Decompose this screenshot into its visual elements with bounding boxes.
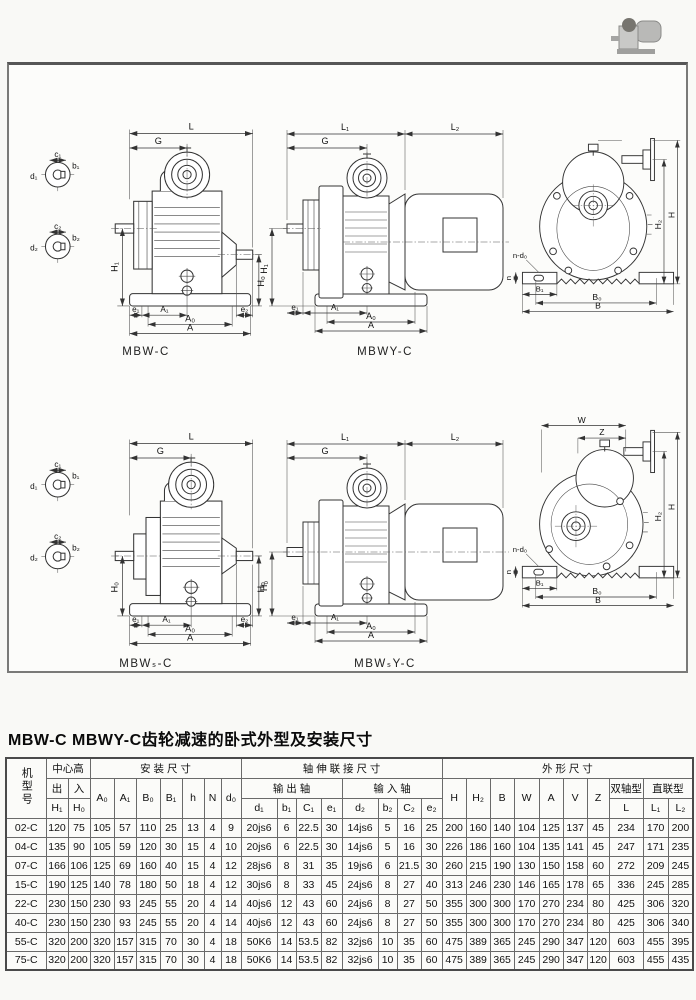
value-cell: 69: [114, 856, 136, 875]
value-cell: 20js6: [241, 818, 277, 837]
value-cell: 125: [90, 856, 114, 875]
value-cell: 35: [397, 932, 421, 951]
value-cell: 4: [204, 856, 221, 875]
header-center-height: 中心高: [46, 758, 90, 778]
dim-label-e1: e₁: [291, 303, 298, 312]
header-b1: b₁: [277, 798, 296, 818]
value-cell: 5: [378, 818, 397, 837]
header-B: B: [490, 778, 514, 818]
value-cell: 234: [563, 913, 587, 932]
header-e2: e₂: [421, 798, 442, 818]
value-cell: 12: [221, 856, 241, 875]
header-mounting: 安 装 尺 寸: [90, 758, 241, 778]
header-H: H: [442, 778, 466, 818]
dimension-table: 机型号 中心高 安 装 尺 寸 轴 伸 联 接 尺 寸 外 形 尺 寸 出 入 …: [5, 757, 694, 971]
value-cell: 209: [643, 856, 668, 875]
value-cell: 22.5: [296, 818, 321, 837]
value-cell: 50K6: [241, 932, 277, 951]
mbw-c-drawing: c₁ b₁ d₁ c₂ b₂ d₂: [27, 111, 265, 345]
value-cell: 300: [490, 894, 514, 913]
dim-label-e2: e₂: [241, 615, 249, 624]
value-cell: 30: [160, 837, 182, 856]
figure-rear-view-2: W Z H H₂ n-d₀ h B₁ B₀ B: [507, 417, 689, 620]
value-cell: 18: [221, 932, 241, 951]
value-cell: 4: [204, 837, 221, 856]
value-cell: 18: [182, 875, 204, 894]
value-cell: 395: [668, 932, 693, 951]
dim-label-B: B: [595, 595, 601, 605]
value-cell: 16: [397, 837, 421, 856]
value-cell: 60: [587, 856, 609, 875]
dim-label-b1: b₁: [72, 162, 80, 171]
photo-base: [617, 49, 655, 54]
value-cell: 245: [668, 856, 693, 875]
value-cell: 4: [204, 818, 221, 837]
value-cell: 14: [221, 913, 241, 932]
table-header: 机型号 中心高 安 装 尺 寸 轴 伸 联 接 尺 寸 外 形 尺 寸 出 入 …: [6, 758, 693, 818]
header-A0: A₀: [90, 778, 114, 818]
value-cell: 336: [609, 875, 643, 894]
dim-label-A1: A₁: [331, 613, 339, 622]
value-cell: 30: [182, 951, 204, 970]
reducer-body: [111, 456, 261, 616]
dim-label-e2: e₂: [241, 305, 249, 314]
value-cell: 300: [490, 913, 514, 932]
value-cell: 25: [160, 818, 182, 837]
dim-label-A: A: [187, 323, 194, 333]
value-cell: 315: [136, 932, 160, 951]
value-cell: 340: [668, 913, 693, 932]
value-cell: 14: [277, 932, 296, 951]
value-cell: 230: [90, 913, 114, 932]
value-cell: 30: [321, 837, 342, 856]
value-cell: 110: [136, 818, 160, 837]
header-outline: 外 形 尺 寸: [442, 758, 693, 778]
photo-motor-body: [636, 21, 661, 42]
value-cell: 475: [442, 951, 466, 970]
table-row: 02-C120751055711025134920js6622.53014js6…: [6, 818, 693, 837]
model-cell: 40-C: [6, 913, 46, 932]
value-cell: 8: [277, 856, 296, 875]
value-cell: 166: [46, 856, 68, 875]
value-cell: 158: [563, 856, 587, 875]
value-cell: 14: [221, 894, 241, 913]
table-row: 07-C16610612569160401541228js68313519js6…: [6, 856, 693, 875]
value-cell: 160: [466, 818, 490, 837]
dim-label-A1: A₁: [331, 303, 339, 312]
value-cell: 200: [68, 932, 90, 951]
value-cell: 57: [114, 818, 136, 837]
value-cell: 60: [421, 932, 442, 951]
value-cell: 125: [539, 818, 563, 837]
header-d1: d₁: [241, 798, 277, 818]
value-cell: 5: [378, 837, 397, 856]
value-cell: 43: [296, 894, 321, 913]
value-cell: 178: [563, 875, 587, 894]
dim-label-c1: c₁: [54, 150, 61, 159]
value-cell: 15: [182, 837, 204, 856]
value-cell: 135: [46, 837, 68, 856]
value-cell: 135: [539, 837, 563, 856]
value-cell: 315: [136, 951, 160, 970]
dim-label-W: W: [578, 417, 587, 425]
value-cell: 70: [160, 932, 182, 951]
value-cell: 320: [90, 932, 114, 951]
reducer-motor-body: [283, 152, 509, 306]
value-cell: 140: [90, 875, 114, 894]
header-H0: H₀: [68, 798, 90, 818]
value-cell: 245: [514, 951, 539, 970]
rear-view-1-drawing: H H₂ n-d₀ h B₁ B₀ B: [507, 127, 689, 324]
model-cell: 02-C: [6, 818, 46, 837]
value-cell: 60: [421, 951, 442, 970]
value-cell: 200: [442, 818, 466, 837]
value-cell: 4: [204, 875, 221, 894]
model-cell: 22-C: [6, 894, 46, 913]
value-cell: 245: [136, 913, 160, 932]
value-cell: 55: [160, 894, 182, 913]
value-cell: 130: [514, 856, 539, 875]
value-cell: 125: [68, 875, 90, 894]
dim-label-d2: d₂: [30, 554, 38, 563]
value-cell: 65: [587, 875, 609, 894]
value-cell: 270: [539, 913, 563, 932]
value-cell: 425: [609, 894, 643, 913]
value-cell: 603: [609, 951, 643, 970]
value-cell: 245: [514, 932, 539, 951]
value-cell: 12: [221, 875, 241, 894]
header-A1: A₁: [114, 778, 136, 818]
value-cell: 226: [442, 837, 466, 856]
value-cell: 435: [668, 951, 693, 970]
value-cell: 120: [136, 837, 160, 856]
model-cell: 04-C: [6, 837, 46, 856]
value-cell: 82: [321, 951, 342, 970]
header-h: h: [182, 778, 204, 818]
header-model-label: 机型号: [18, 767, 34, 806]
value-cell: 300: [466, 894, 490, 913]
mbwy-c-drawing: L₁ L₂ G H₁ e₁ A₁ A₀ A: [259, 111, 511, 345]
dim-label-G: G: [321, 446, 328, 456]
dim-label-A1: A₁: [162, 615, 170, 624]
dim-label-e1: e₁: [291, 613, 298, 622]
housing: [522, 430, 673, 577]
value-cell: 355: [442, 894, 466, 913]
value-cell: 8: [378, 875, 397, 894]
figure-caption: MBW-C: [27, 346, 265, 358]
reducer-body: [111, 146, 261, 306]
value-cell: 290: [539, 932, 563, 951]
value-cell: 24js6: [342, 913, 378, 932]
value-cell: 347: [563, 951, 587, 970]
value-cell: 157: [114, 932, 136, 951]
dim-label-A1: A₁: [160, 305, 168, 314]
value-cell: 425: [609, 913, 643, 932]
value-cell: 180: [136, 875, 160, 894]
table-row: 22-C23015023093245552041440js612436024js…: [6, 894, 693, 913]
value-cell: 70: [160, 951, 182, 970]
value-cell: 190: [490, 856, 514, 875]
value-cell: 215: [466, 856, 490, 875]
value-cell: 389: [466, 951, 490, 970]
value-cell: 160: [136, 856, 160, 875]
dim-label-e1: e₁: [132, 305, 140, 314]
value-cell: 30: [421, 856, 442, 875]
value-cell: 475: [442, 932, 466, 951]
value-cell: 230: [46, 913, 68, 932]
figure-caption: MBWₛY-C: [259, 656, 511, 670]
header-C1: C₁: [296, 798, 321, 818]
value-cell: 27: [397, 913, 421, 932]
value-cell: 150: [68, 913, 90, 932]
value-cell: 10: [221, 837, 241, 856]
value-cell: 53.5: [296, 932, 321, 951]
model-cell: 15-C: [6, 875, 46, 894]
header-shaft-ext: 轴 伸 联 接 尺 寸: [241, 758, 442, 778]
value-cell: 93: [114, 894, 136, 913]
value-cell: 104: [514, 837, 539, 856]
dim-label-A: A: [368, 630, 374, 640]
value-cell: 290: [539, 951, 563, 970]
value-cell: 313: [442, 875, 466, 894]
dim-label-h: h: [507, 570, 513, 574]
header-d2: d₂: [342, 798, 378, 818]
header-direct: 直联型: [643, 778, 693, 798]
value-cell: 246: [466, 875, 490, 894]
value-cell: 365: [490, 951, 514, 970]
housing: [522, 138, 673, 283]
header-d0: d₀: [221, 778, 241, 818]
header-H2: H₂: [466, 778, 490, 818]
value-cell: 30: [421, 837, 442, 856]
header-C2: C₂: [397, 798, 421, 818]
header-out: 出: [46, 778, 68, 798]
shaft-end-views: c₁ b₁ d₁ c₂ b₂ d₂: [30, 460, 80, 573]
table-row: 55-C320200320157315703041850K61453.58232…: [6, 932, 693, 951]
value-cell: 40js6: [241, 913, 277, 932]
value-cell: 230: [90, 894, 114, 913]
value-cell: 105: [90, 837, 114, 856]
value-cell: 45: [587, 837, 609, 856]
value-cell: 306: [643, 913, 668, 932]
value-cell: 355: [442, 913, 466, 932]
value-cell: 31: [296, 856, 321, 875]
value-cell: 82: [321, 932, 342, 951]
shaft-end-views: c₁ b₁ d₁ c₂ b₂ d₂: [30, 150, 80, 263]
value-cell: 19js6: [342, 856, 378, 875]
value-cell: 365: [490, 932, 514, 951]
figure-mbw-c: c₁ b₁ d₁ c₂ b₂ d₂: [27, 111, 265, 358]
value-cell: 90: [68, 837, 90, 856]
value-cell: 200: [668, 818, 693, 837]
value-cell: 14: [277, 951, 296, 970]
value-cell: 140: [490, 818, 514, 837]
dim-label-b2: b₂: [72, 233, 80, 242]
value-cell: 24js6: [342, 875, 378, 894]
value-cell: 30js6: [241, 875, 277, 894]
mbwsy-c-drawing: L₁ L₂ G H₀ e₁ A₁ A₀ A: [259, 421, 511, 655]
value-cell: 20js6: [241, 837, 277, 856]
value-cell: 320: [668, 894, 693, 913]
value-cell: 603: [609, 932, 643, 951]
value-cell: 137: [563, 818, 587, 837]
header-B0: B₀: [136, 778, 160, 818]
figure-rear-view-1: H H₂ n-d₀ h B₁ B₀ B: [507, 127, 689, 324]
header-double-shaft: 双轴型: [609, 778, 643, 798]
value-cell: 59: [114, 837, 136, 856]
value-cell: 10: [378, 932, 397, 951]
value-cell: 272: [609, 856, 643, 875]
value-cell: 4: [204, 951, 221, 970]
dim-label-b2: b₂: [72, 543, 80, 552]
drawing-frame: c₁ b₁ d₁ c₂ b₂ d₂: [7, 62, 688, 673]
value-cell: 320: [46, 951, 68, 970]
value-cell: 35: [321, 856, 342, 875]
dim-label-L1: L₁: [341, 122, 349, 132]
reducer-motor-body: [283, 462, 509, 616]
value-cell: 24js6: [342, 894, 378, 913]
dim-label-c1: c₁: [54, 460, 61, 469]
model-cell: 75-C: [6, 951, 46, 970]
value-cell: 141: [563, 837, 587, 856]
value-cell: 247: [609, 837, 643, 856]
model-cell: 07-C: [6, 856, 46, 875]
dim-label-H2: H₂: [653, 512, 663, 522]
value-cell: 22.5: [296, 837, 321, 856]
value-cell: 106: [68, 856, 90, 875]
dim-label-G: G: [155, 136, 162, 146]
value-cell: 35: [397, 951, 421, 970]
value-cell: 150: [68, 894, 90, 913]
value-cell: 6: [277, 837, 296, 856]
value-cell: 25: [421, 818, 442, 837]
value-cell: 21.5: [397, 856, 421, 875]
header-input-shaft: 输 入 轴: [342, 778, 442, 798]
value-cell: 20: [182, 913, 204, 932]
header-model: 机型号: [6, 758, 46, 818]
photo-knob: [622, 18, 636, 32]
dim-label-G: G: [321, 136, 328, 146]
value-cell: 27: [397, 894, 421, 913]
photo-shaft: [611, 36, 619, 41]
dim-label-H0: H₀: [259, 581, 269, 591]
header-b2: b₂: [378, 798, 397, 818]
value-cell: 170: [514, 894, 539, 913]
value-cell: 14js6: [342, 818, 378, 837]
figure-caption: MBWY-C: [259, 346, 511, 358]
value-cell: 12: [277, 913, 296, 932]
header-N: N: [204, 778, 221, 818]
value-cell: 50: [160, 875, 182, 894]
dim-label-L1: L₁: [341, 432, 349, 442]
value-cell: 104: [514, 818, 539, 837]
value-cell: 9: [221, 818, 241, 837]
dim-label-H0-left: H₀: [109, 582, 119, 593]
header-output-shaft: 输 出 轴: [241, 778, 342, 798]
header-A: A: [539, 778, 563, 818]
value-cell: 60: [321, 894, 342, 913]
dim-label-H1: H₁: [259, 264, 269, 274]
value-cell: 53.5: [296, 951, 321, 970]
dim-label-B1: B₁: [536, 579, 544, 588]
page-title: MBW-C MBWY-C齿轮减速的卧式外型及安装尺寸: [8, 726, 373, 750]
value-cell: 80: [587, 894, 609, 913]
table-row: 40-C23015023093245552041440js612436024js…: [6, 913, 693, 932]
value-cell: 40js6: [241, 894, 277, 913]
dim-label-e1: e₁: [132, 615, 140, 624]
value-cell: 146: [514, 875, 539, 894]
dim-label-Z: Z: [599, 427, 604, 437]
value-cell: 389: [466, 932, 490, 951]
value-cell: 455: [643, 951, 668, 970]
header-H1: H₁: [46, 798, 68, 818]
value-cell: 16: [397, 818, 421, 837]
dim-label-L2: L₂: [451, 122, 460, 132]
header-B1: B₁: [160, 778, 182, 818]
figure-mbwy-c: L₁ L₂ G H₁ e₁ A₁ A₀ A MBWY-C: [259, 111, 511, 358]
value-cell: 245: [643, 875, 668, 894]
value-cell: 50: [421, 913, 442, 932]
dim-label-B1: B₁: [536, 284, 544, 293]
value-cell: 13: [182, 818, 204, 837]
value-cell: 80: [587, 913, 609, 932]
value-cell: 320: [46, 932, 68, 951]
dim-label-L: L: [189, 122, 194, 132]
table-row: 75-C320200320157315703041850K61453.58232…: [6, 951, 693, 970]
header-L: L: [609, 798, 643, 818]
value-cell: 186: [466, 837, 490, 856]
dim-label-A: A: [187, 633, 194, 643]
value-cell: 285: [668, 875, 693, 894]
header-L1: L₁: [643, 798, 668, 818]
header-L2: L₂: [668, 798, 693, 818]
value-cell: 40: [421, 875, 442, 894]
value-cell: 4: [204, 913, 221, 932]
value-cell: 171: [643, 837, 668, 856]
value-cell: 33: [296, 875, 321, 894]
dim-label-h: h: [507, 276, 513, 280]
dim-label-b1: b₁: [72, 472, 80, 481]
value-cell: 55: [160, 913, 182, 932]
value-cell: 8: [378, 894, 397, 913]
value-cell: 320: [90, 951, 114, 970]
rear-view-2-drawing: W Z H H₂ n-d₀ h B₁ B₀ B: [507, 417, 689, 620]
value-cell: 30: [321, 818, 342, 837]
value-cell: 120: [587, 951, 609, 970]
dim-label-G: G: [157, 446, 164, 456]
value-cell: 170: [514, 913, 539, 932]
value-cell: 120: [587, 932, 609, 951]
dim-label-H1: H₁: [109, 262, 119, 272]
value-cell: 235: [668, 837, 693, 856]
dim-label-d1: d₁: [30, 172, 38, 181]
mbws-c-drawing: c₁ b₁ d₁ c₂ b₂ d₂: [27, 421, 265, 655]
catalog-page: c₁ b₁ d₁ c₂ b₂ d₂: [0, 0, 696, 1000]
dim-label-B: B: [595, 301, 601, 311]
value-cell: 160: [490, 837, 514, 856]
value-cell: 14js6: [342, 837, 378, 856]
value-cell: 230: [46, 894, 68, 913]
dim-label-n-d0: n-d₀: [513, 251, 527, 260]
value-cell: 157: [114, 951, 136, 970]
value-cell: 93: [114, 913, 136, 932]
value-cell: 45: [321, 875, 342, 894]
value-cell: 270: [539, 894, 563, 913]
product-photo: [606, 12, 668, 60]
value-cell: 18: [221, 951, 241, 970]
dim-label-L2: L₂: [451, 432, 460, 442]
dim-label-A: A: [368, 320, 374, 330]
